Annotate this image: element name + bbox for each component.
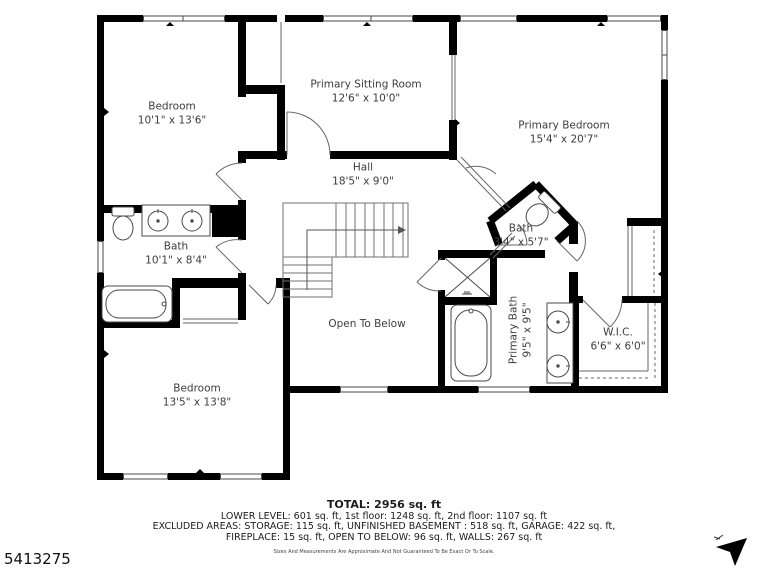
room-label-bedroom-2: Bedroom 13'5" x 13'8" xyxy=(163,382,231,409)
bathtub-icon xyxy=(451,305,491,381)
room-name: Bedroom xyxy=(163,382,231,396)
room-label-primary-bath: Primary Bath 9'5" x 9'5" xyxy=(507,296,534,364)
room-label-open-to-below: Open To Below xyxy=(328,318,405,332)
room-dims: 9'5" x 9'5" xyxy=(521,296,535,364)
room-label-hall: Hall 18'5" x 9'0" xyxy=(332,161,394,188)
stairs-up-arrow-icon xyxy=(307,226,406,290)
room-name: Bath xyxy=(145,240,207,254)
disclaimer-text: Sizes And Measurements Are Approximate A… xyxy=(0,549,768,555)
room-dims: 15'4" x 20'7" xyxy=(518,133,609,147)
room-name: Hall xyxy=(332,161,394,175)
room-dims: 10'1" x 8'4" xyxy=(145,254,207,268)
room-name: Open To Below xyxy=(328,318,405,332)
total-area: TOTAL: 2956 sq. ft xyxy=(0,499,768,512)
floorplan-page: Bedroom 10'1" x 13'6" Primary Sitting Ro… xyxy=(0,0,768,576)
room-dims: 6'6" x 6'0" xyxy=(590,340,645,354)
room-label-primary-sitting-room: Primary Sitting Room 12'6" x 10'0" xyxy=(310,78,421,105)
room-dims: 12'6" x 10'0" xyxy=(310,92,421,106)
room-label-bath: Bath 10'1" x 8'4" xyxy=(145,240,207,267)
room-name: W.I.C. xyxy=(590,326,645,340)
room-dims: 13'5" x 13'8" xyxy=(163,396,231,410)
room-label-bedroom-1: Bedroom 10'1" x 13'6" xyxy=(138,100,206,127)
room-name: Bedroom xyxy=(138,100,206,114)
room-dims: 10'1" x 13'6" xyxy=(138,114,206,128)
bathtub-icon xyxy=(102,286,172,322)
room-name: Primary Bath xyxy=(507,296,521,364)
vanity-double-sink-icon xyxy=(547,303,573,383)
room-dims: 3'4" x 5'7" xyxy=(493,236,548,250)
room-label-wic: W.I.C. 6'6" x 6'0" xyxy=(590,326,645,353)
listing-id: 5413275 xyxy=(4,550,71,568)
room-name: Primary Bedroom xyxy=(518,119,609,133)
room-name: Primary Sitting Room xyxy=(310,78,421,92)
room-name: Bath xyxy=(493,222,548,236)
excluded-areas-2: FIREPLACE: 15 sq. ft, OPEN TO BELOW: 96 … xyxy=(0,533,768,544)
staircase xyxy=(283,203,408,297)
area-summary: TOTAL: 2956 sq. ft LOWER LEVEL: 601 sq. … xyxy=(0,499,768,555)
shower-icon xyxy=(445,258,490,297)
room-label-primary-bedroom: Primary Bedroom 15'4" x 20'7" xyxy=(518,119,609,146)
room-label-bath-angled: Bath 3'4" x 5'7" xyxy=(493,222,548,249)
vanity-double-sink-icon xyxy=(142,205,210,236)
room-dims: 18'5" x 9'0" xyxy=(332,175,394,189)
toilet-icon xyxy=(112,207,134,240)
